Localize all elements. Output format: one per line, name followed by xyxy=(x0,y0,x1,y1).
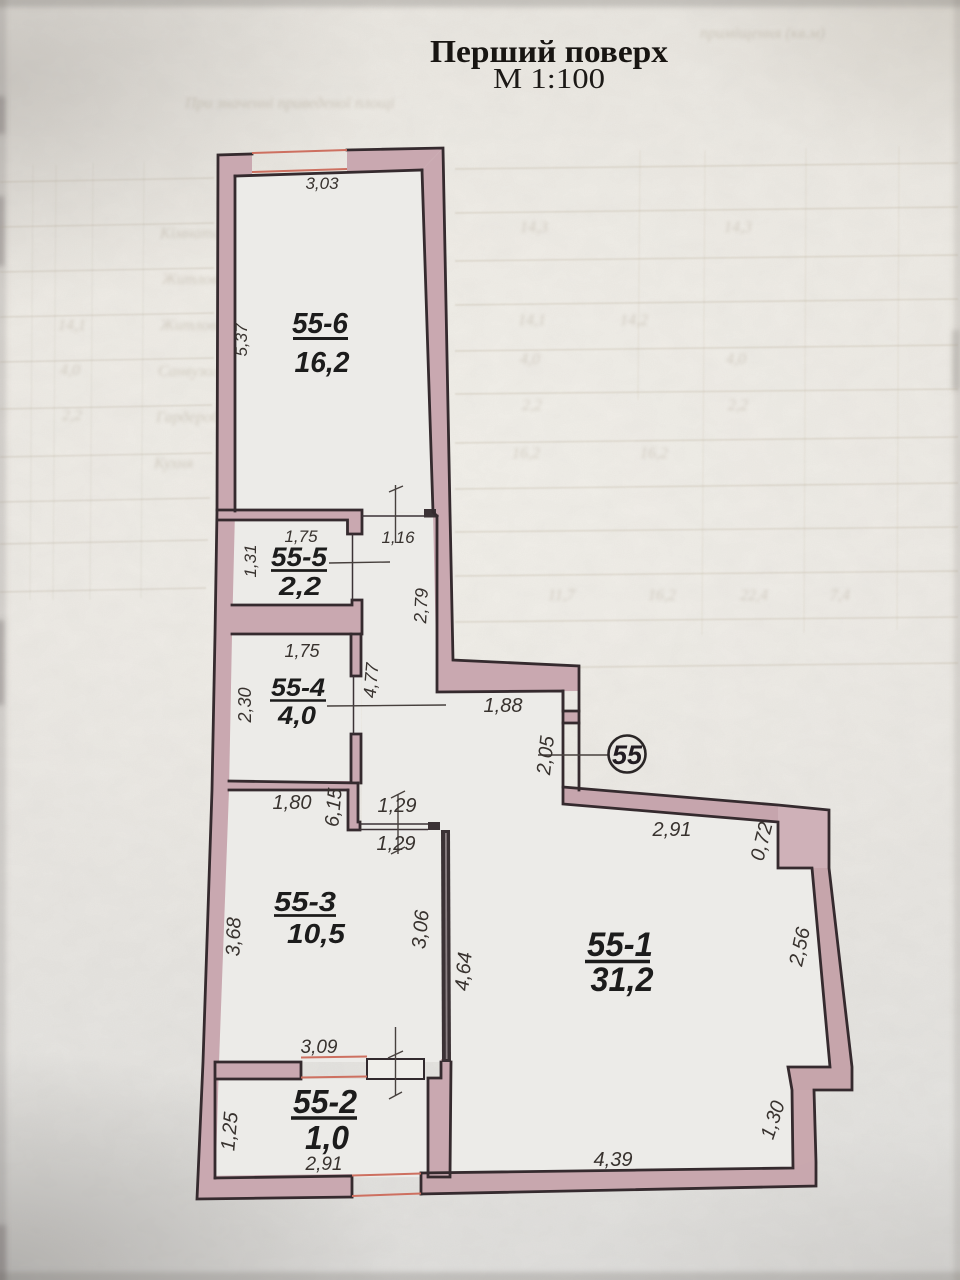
svg-text:16,2: 16,2 xyxy=(295,347,350,379)
svg-text:4,39: 4,39 xyxy=(594,1149,633,1171)
svg-text:55: 55 xyxy=(612,740,643,770)
svg-text:1,88: 1,88 xyxy=(484,695,523,717)
svg-text:4,0: 4,0 xyxy=(726,351,746,368)
svg-text:55-2: 55-2 xyxy=(293,1083,358,1120)
svg-text:3,06: 3,06 xyxy=(408,908,433,950)
svg-text:2,30: 2,30 xyxy=(235,687,255,723)
svg-text:55-3: 55-3 xyxy=(274,886,336,917)
svg-text:31,2: 31,2 xyxy=(591,961,654,999)
svg-text:2,2: 2,2 xyxy=(522,397,542,414)
svg-text:55-4: 55-4 xyxy=(271,674,325,702)
svg-text:5,37: 5,37 xyxy=(232,323,251,357)
svg-text:Кімната: Кімната xyxy=(159,225,221,242)
svg-text:1,29: 1,29 xyxy=(377,833,416,855)
svg-text:1,31: 1,31 xyxy=(241,544,260,577)
svg-text:14,1: 14,1 xyxy=(58,317,86,334)
svg-text:55-5: 55-5 xyxy=(271,542,328,572)
svg-text:4,77: 4,77 xyxy=(360,661,383,699)
svg-text:2,2: 2,2 xyxy=(62,407,82,424)
svg-text:2,91: 2,91 xyxy=(304,1154,342,1175)
svg-text:4,0: 4,0 xyxy=(277,702,316,730)
svg-text:10,5: 10,5 xyxy=(287,918,345,949)
svg-text:3,09: 3,09 xyxy=(301,1037,338,1058)
svg-text:Гардероб: Гардероб xyxy=(155,409,221,426)
svg-text:2,2: 2,2 xyxy=(728,397,748,414)
svg-text:1,80: 1,80 xyxy=(273,792,312,814)
svg-text:2,91: 2,91 xyxy=(652,819,692,841)
svg-text:1,75: 1,75 xyxy=(284,527,318,546)
svg-text:4,0: 4,0 xyxy=(520,351,540,368)
svg-text:14,3: 14,3 xyxy=(724,219,752,236)
svg-text:3,03: 3,03 xyxy=(305,174,339,193)
svg-text:55-6: 55-6 xyxy=(292,308,349,340)
svg-text:16,2: 16,2 xyxy=(512,445,540,462)
svg-text:1,16: 1,16 xyxy=(381,528,415,547)
svg-text:16,2: 16,2 xyxy=(648,587,676,604)
svg-text:16,2: 16,2 xyxy=(640,445,668,462)
svg-text:Кухня: Кухня xyxy=(153,455,193,472)
svg-text:14,3: 14,3 xyxy=(520,219,548,236)
svg-text:Житлова: Житлова xyxy=(159,317,224,334)
svg-text:55-1: 55-1 xyxy=(587,926,653,964)
svg-text:6,15: 6,15 xyxy=(321,786,346,828)
svg-text:3,68: 3,68 xyxy=(222,917,245,957)
svg-text:М 1:100: М 1:100 xyxy=(493,63,605,95)
svg-text:При значенні приведеної площі: При значенні приведеної площі xyxy=(184,95,395,112)
svg-text:1,25: 1,25 xyxy=(217,1110,242,1152)
svg-text:1,75: 1,75 xyxy=(284,641,320,661)
svg-text:Санвузол: Санвузол xyxy=(158,363,219,380)
svg-text:2,05: 2,05 xyxy=(533,734,559,777)
svg-text:1,29: 1,29 xyxy=(378,795,417,817)
svg-text:14,1: 14,1 xyxy=(518,312,546,329)
svg-text:14,2: 14,2 xyxy=(620,312,648,329)
svg-text:приміщення (кв.м): приміщення (кв.м) xyxy=(700,25,825,42)
svg-text:4,0: 4,0 xyxy=(60,362,80,379)
svg-text:2,2: 2,2 xyxy=(278,571,322,601)
svg-text:1,0: 1,0 xyxy=(305,1119,350,1156)
svg-text:2,79: 2,79 xyxy=(410,588,432,625)
svg-text:7,4: 7,4 xyxy=(830,587,850,604)
svg-text:11,7: 11,7 xyxy=(548,587,576,604)
svg-text:4,64: 4,64 xyxy=(451,951,476,992)
svg-text:22,4: 22,4 xyxy=(740,587,768,604)
